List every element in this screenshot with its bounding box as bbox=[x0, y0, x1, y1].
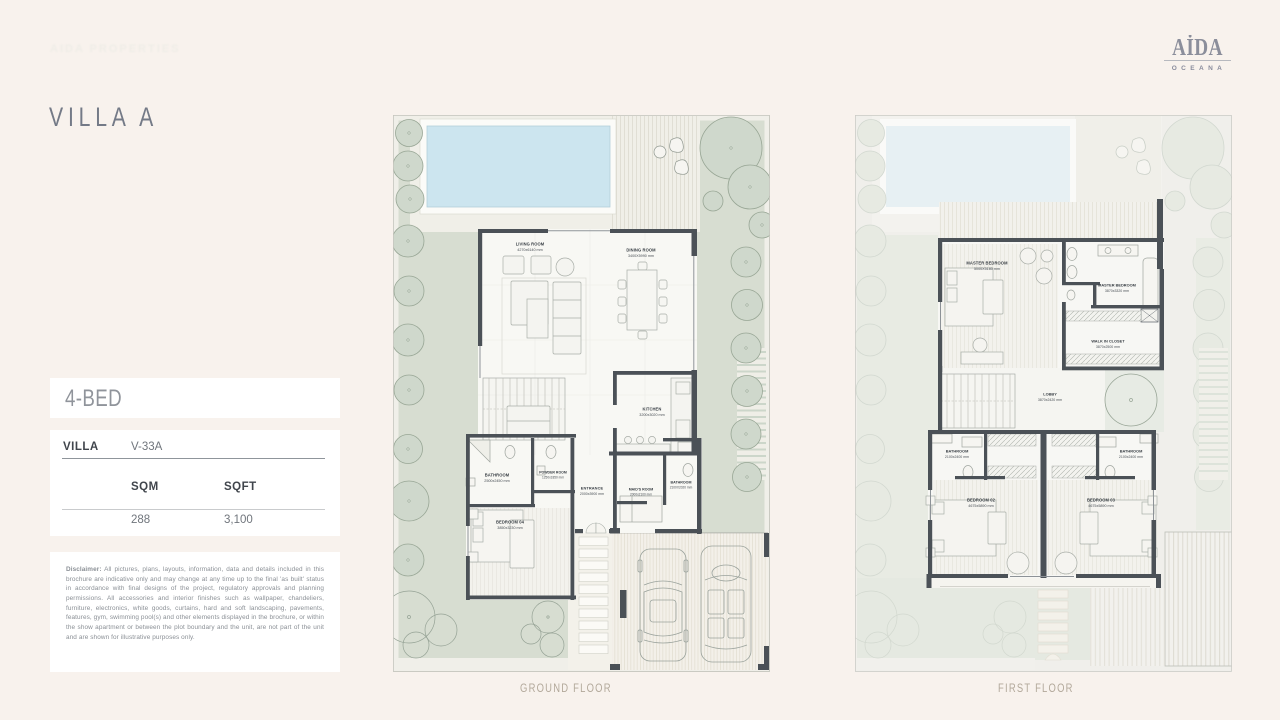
svg-text:2500x2450 mm: 2500x2450 mm bbox=[484, 479, 509, 483]
svg-text:BATHROOM: BATHROOM bbox=[1120, 449, 1143, 454]
svg-text:KITCHEN: KITCHEN bbox=[643, 407, 662, 412]
svg-text:4675x5890 mm: 4675x5890 mm bbox=[1088, 504, 1113, 508]
svg-text:1250x1850 mm: 1250x1850 mm bbox=[542, 476, 564, 480]
svg-text:BEDROOM 03: BEDROOM 03 bbox=[1087, 498, 1116, 503]
svg-text:3400X5990 mm: 3400X5990 mm bbox=[628, 254, 654, 258]
svg-text:2100X2020 mm: 2100X2020 mm bbox=[670, 486, 693, 490]
svg-text:2000x2100 mm: 2000x2100 mm bbox=[630, 493, 652, 497]
svg-text:ENTRANCE: ENTRANCE bbox=[581, 486, 604, 491]
svg-text:2100x2400 mm: 2100x2400 mm bbox=[1119, 455, 1143, 459]
svg-text:2000x3900 mm: 2000x3900 mm bbox=[580, 492, 604, 496]
svg-text:4675x5890 mm: 4675x5890 mm bbox=[968, 504, 993, 508]
svg-text:BATHROOM: BATHROOM bbox=[946, 449, 969, 454]
svg-text:3870x2500 mm: 3870x2500 mm bbox=[1096, 345, 1120, 349]
svg-text:POWDER ROOM: POWDER ROOM bbox=[539, 471, 567, 475]
svg-text:BATHROOM: BATHROOM bbox=[671, 481, 692, 485]
svg-text:3870x2420 mm: 3870x2420 mm bbox=[1038, 398, 1062, 402]
svg-text:4270x6140 mm: 4270x6140 mm bbox=[517, 248, 542, 252]
svg-text:3850x3230 mm: 3850x3230 mm bbox=[497, 526, 522, 530]
svg-text:BEDROOM 02: BEDROOM 02 bbox=[967, 498, 996, 503]
svg-text:WALK IN CLOSET: WALK IN CLOSET bbox=[1091, 339, 1125, 344]
svg-text:MAID'S ROOM: MAID'S ROOM bbox=[629, 488, 654, 492]
svg-text:3200x3020 mm: 3200x3020 mm bbox=[639, 413, 664, 417]
svg-text:MASTER BEDROOM: MASTER BEDROOM bbox=[1098, 283, 1136, 288]
svg-text:BEDROOM 04: BEDROOM 04 bbox=[496, 520, 525, 525]
svg-text:BATHROOM: BATHROOM bbox=[485, 473, 510, 478]
svg-text:5000X5180 mm: 5000X5180 mm bbox=[974, 267, 1000, 271]
svg-text:2100x2400 mm: 2100x2400 mm bbox=[945, 455, 969, 459]
svg-text:LOBBY: LOBBY bbox=[1043, 392, 1057, 397]
svg-text:MASTER BEDROOM: MASTER BEDROOM bbox=[966, 261, 1008, 266]
svg-text:DINING ROOM: DINING ROOM bbox=[626, 248, 656, 253]
svg-text:3870x3320 mm: 3870x3320 mm bbox=[1105, 289, 1129, 293]
svg-text:LIVING ROOM: LIVING ROOM bbox=[516, 242, 545, 247]
